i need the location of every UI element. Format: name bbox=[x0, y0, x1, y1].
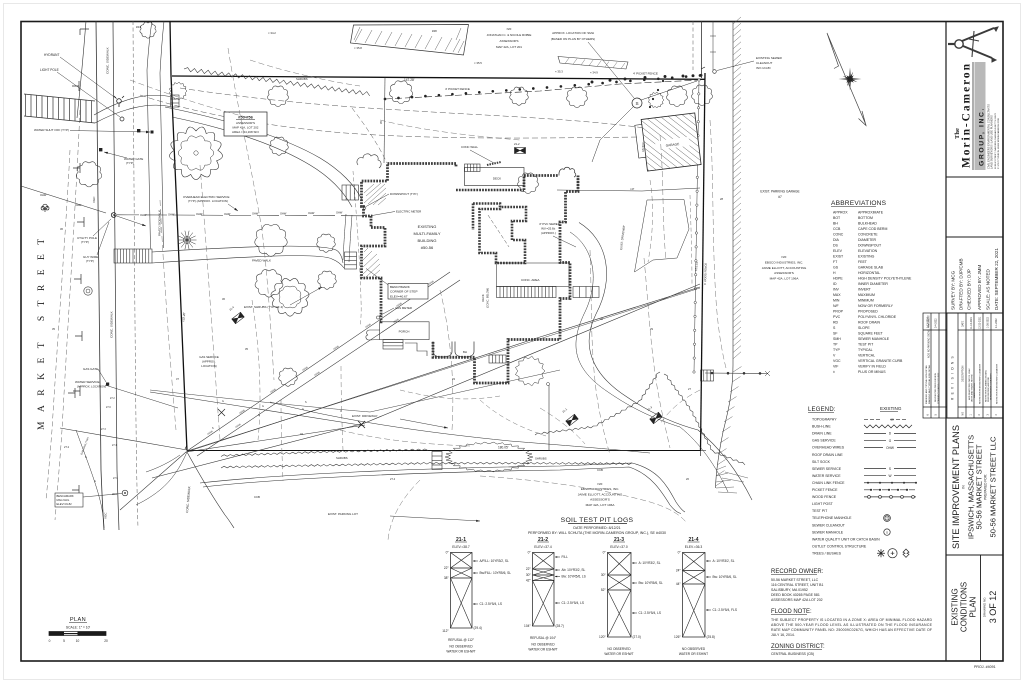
svg-text:REFUSAL @ 112″: REFUSAL @ 112″ bbox=[448, 638, 475, 642]
svg-text:PICKET FENCE: PICKET FENCE bbox=[812, 488, 838, 492]
svg-text:WATER OR ESHWT: WATER OR ESHWT bbox=[604, 652, 633, 656]
svg-text:ELEV.=38.7: ELEV.=38.7 bbox=[452, 545, 470, 549]
svg-text:G: G bbox=[222, 400, 224, 403]
svg-text:OHW: OHW bbox=[40, 193, 47, 197]
svg-text:DEPARTMENT COMMENTS: DEPARTMENT COMMENTS bbox=[990, 373, 993, 400]
svg-text:BOT: BOT bbox=[833, 216, 841, 220]
svg-text:INV.=24.8±: INV.=24.8± bbox=[756, 66, 771, 70]
svg-text:MAP 42A, LOT 196A: MAP 42A, LOT 196A bbox=[586, 503, 616, 507]
svg-text:12-22-2021: 12-22-2021 bbox=[979, 316, 982, 329]
svg-text:ABBREVIATIONS: ABBREVIATIONS bbox=[831, 200, 887, 207]
svg-text:REFUSAL @ 104″: REFUSAL @ 104″ bbox=[530, 636, 557, 640]
svg-text:MIN: MIN bbox=[833, 299, 840, 303]
svg-text:TOPOGRAPHY: TOPOGRAPHY bbox=[812, 418, 837, 422]
svg-text:CONDITIONS: CONDITIONS bbox=[960, 582, 969, 632]
svg-text:EXISTING SEWER: EXISTING SEWER bbox=[756, 56, 783, 60]
svg-text:× 35.3: × 35.3 bbox=[555, 70, 563, 74]
svg-text:#48: #48 bbox=[432, 29, 437, 33]
svg-text:MARKING AND TYPICAL SIGN DETAI: MARKING AND TYPICAL SIGN DETAIL bbox=[925, 364, 928, 404]
svg-text:PVC: PVC bbox=[833, 315, 841, 319]
svg-text:OHW: OHW bbox=[308, 211, 315, 215]
svg-text:SEWER MANHOLE: SEWER MANHOLE bbox=[812, 530, 844, 534]
svg-text:THE SUBJECT PROPERTY IS LO: THE SUBJECT PROPERTY IS LOCATED IN A ZON… bbox=[771, 618, 932, 622]
svg-text:INNER DIAMETER: INNER DIAMETER bbox=[858, 282, 888, 286]
svg-text:APPROVED BY: JMM: APPROVED BY: JMM bbox=[977, 265, 982, 310]
svg-text:DATE: DATE bbox=[962, 320, 965, 327]
svg-text:EXIST. SHRUBS (TYP. OF 4): EXIST. SHRUBS (TYP. OF 4) bbox=[244, 305, 283, 309]
svg-text:GARAGE SLAB: GARAGE SLAB bbox=[858, 266, 884, 270]
svg-text:NOW OR FORMERLY: NOW OR FORMERLY bbox=[858, 304, 894, 308]
svg-text:CHECKED BY: DJP: CHECKED BY: DJP bbox=[967, 269, 972, 310]
svg-text:27.4: 27.4 bbox=[112, 444, 117, 447]
svg-text:INV.=25.8±: INV.=25.8± bbox=[541, 227, 556, 231]
svg-text:EXISTING: EXISTING bbox=[858, 255, 875, 259]
svg-text:EBSCO INDUSTRIES, INC.: EBSCO INDUSTRIES, INC. bbox=[765, 260, 803, 264]
svg-text:1-12-2024: 1-12-2024 bbox=[927, 316, 930, 328]
svg-text:#7: #7 bbox=[778, 195, 782, 199]
svg-text:C1: 2.5Y5/4, FLS: C1: 2.5Y5/4, FLS bbox=[713, 608, 737, 612]
svg-text:SMH: SMH bbox=[833, 337, 841, 341]
svg-text:(TYP): (TYP) bbox=[86, 259, 94, 263]
svg-text:66 ELM STREET, DANVERS, MASSAC: 66 ELM STREET, DANVERS, MASSACHUSETTS 01… bbox=[994, 113, 997, 169]
svg-text:SHRUBS: SHRUBS bbox=[296, 77, 308, 81]
svg-text:CAPE COD BERM: CAPE COD BERM bbox=[858, 227, 887, 231]
svg-text:21-2: 21-2 bbox=[514, 142, 520, 146]
svg-text:(25.8): (25.8) bbox=[707, 635, 715, 639]
svg-text:OHW: OHW bbox=[75, 203, 82, 207]
svg-text:CONC. SIDEWALK: CONC. SIDEWALK bbox=[106, 46, 110, 74]
svg-text:WATER OR ESHWT: WATER OR ESHWT bbox=[446, 650, 475, 654]
svg-text:101.15′: 101.15′ bbox=[694, 261, 699, 271]
svg-text:DRAIN LINE: DRAIN LINE bbox=[812, 432, 832, 436]
svg-text:SEWER CLEANOUT: SEWER CLEANOUT bbox=[812, 523, 846, 527]
svg-text:ELEV: ELEV bbox=[833, 249, 843, 253]
svg-text:APPROX. LOCATION OF SMH: APPROX. LOCATION OF SMH bbox=[552, 31, 594, 35]
svg-text:DIA: DIA bbox=[833, 238, 840, 242]
svg-text:GAS GATE: GAS GATE bbox=[83, 367, 98, 371]
svg-text:104″: 104″ bbox=[524, 624, 531, 628]
svg-text:CONC. SIDEWALK: CONC. SIDEWALK bbox=[110, 310, 114, 338]
svg-text:1-26-2022: 1-26-2022 bbox=[987, 316, 990, 328]
svg-text:DECK: DECK bbox=[493, 177, 501, 181]
svg-text:OHW: OHW bbox=[140, 213, 147, 217]
svg-text:50-56 MARKET STREET LLC: 50-56 MARKET STREET LLC bbox=[989, 436, 998, 538]
svg-text:#44: #44 bbox=[136, 25, 141, 29]
svg-text:GAS METER: GAS METER bbox=[395, 306, 412, 310]
svg-text:N/F: N/F bbox=[833, 304, 839, 308]
svg-text:A: 10YR3/2, SL: A: 10YR3/2, SL bbox=[639, 561, 661, 565]
svg-text:HYDRANT: HYDRANT bbox=[44, 53, 59, 57]
svg-text:#50-56: #50-56 bbox=[421, 245, 434, 250]
svg-text:11-10-2021: 11-10-2021 bbox=[970, 316, 973, 329]
svg-text:BOTTOM: BOTTOM bbox=[858, 216, 873, 220]
svg-text:3 OF 12: 3 OF 12 bbox=[988, 591, 998, 624]
svg-text:SEWER SERVICE: SEWER SERVICE bbox=[812, 467, 842, 471]
svg-text:WATER QUALITY UNIT OR CATCH BA: WATER QUALITY UNIT OR CATCH BASIN bbox=[812, 537, 880, 541]
svg-text:ROOF DRAIN: ROOF DRAIN bbox=[858, 321, 880, 325]
svg-text:R E V I S I O N S: R E V I S I O N S bbox=[951, 355, 955, 400]
svg-text:LANDSCAPING: LANDSCAPING bbox=[973, 383, 976, 398]
svg-text:VIF: VIF bbox=[833, 365, 838, 369]
svg-text:±: ± bbox=[833, 370, 835, 374]
svg-text:WATER OR ESHWT: WATER OR ESHWT bbox=[528, 648, 557, 652]
svg-text:EXISTING: EXISTING bbox=[880, 406, 902, 411]
svg-text:(28.7): (28.7) bbox=[556, 624, 564, 628]
svg-text:ELEV=31.82: ELEV=31.82 bbox=[57, 502, 73, 506]
svg-text:OVERHEAD WIRES: OVERHEAD WIRES bbox=[812, 446, 845, 450]
svg-text:SILT SOCK: SILT SOCK bbox=[812, 460, 831, 464]
svg-text:MARKET STREET: MARKET STREET bbox=[37, 229, 47, 430]
svg-text:OHW: OHW bbox=[196, 212, 203, 216]
svg-text:EXISTING: EXISTING bbox=[951, 588, 960, 625]
svg-text:MAG NAIL: MAG NAIL bbox=[57, 498, 70, 502]
svg-text:VGC: VGC bbox=[92, 196, 96, 203]
svg-text:OHW: OHW bbox=[336, 211, 343, 215]
svg-text:ELEV.=37.4: ELEV.=37.4 bbox=[534, 545, 552, 549]
svg-text:SQUARE FEET: SQUARE FEET bbox=[858, 332, 884, 336]
svg-text:DOWNSPOUT (TYP.): DOWNSPOUT (TYP.) bbox=[390, 192, 418, 196]
svg-text:(TYP): (TYP) bbox=[126, 161, 134, 165]
svg-text:Ab: 10YR3/2, SL: Ab: 10YR3/2, SL bbox=[562, 568, 586, 572]
svg-text:NO OBSERVED: NO OBSERVED bbox=[531, 643, 555, 647]
svg-text:FILL: FILL bbox=[562, 555, 569, 559]
svg-text:FEET: FEET bbox=[858, 260, 868, 264]
svg-text:112″: 112″ bbox=[442, 629, 449, 633]
svg-text:Bw: 10YR5/6, SL: Bw: 10YR5/6, SL bbox=[713, 575, 738, 579]
svg-text:10: 10 bbox=[76, 639, 80, 643]
svg-text:ELECTRIC METER: ELECTRIC METER bbox=[396, 210, 421, 214]
svg-text:CORNER OF STEP: CORNER OF STEP bbox=[390, 290, 418, 294]
svg-text:DECK: DECK bbox=[481, 294, 485, 301]
svg-text:MULTI-FAMILY: MULTI-FAMILY bbox=[414, 231, 441, 236]
svg-text:OHW: OHW bbox=[252, 212, 259, 216]
svg-text:× 34.2: × 34.2 bbox=[268, 31, 276, 35]
svg-text:VGC: VGC bbox=[833, 359, 841, 363]
svg-text:MAP 42A, LOT 202: MAP 42A, LOT 202 bbox=[233, 126, 259, 130]
svg-text:SHRUBS: SHRUBS bbox=[535, 457, 547, 461]
svg-text:REVISE PER PEER REVIEW COMMENT: REVISE PER PEER REVIEW COMMENTS bbox=[980, 363, 982, 404]
svg-text:REVISE PER PEER REVIEW COMMENT: REVISE PER PEER REVIEW COMMENTS bbox=[997, 363, 999, 404]
svg-text:SITE IMPROVEMENT PLANS: SITE IMPROVEMENT PLANS bbox=[951, 425, 961, 549]
svg-text:P: 978-777-8586 W: WWW.MORIN: P: 978-777-8586 W: WWW.MORINCAMERON.COM bbox=[997, 118, 1000, 169]
svg-text:PERFORMED BY: WILL SCHUTA (THE: PERFORMED BY: WILL SCHUTA (THE MORIN-CAM… bbox=[528, 531, 666, 535]
svg-text:POLYVINYL CHLORIDE: POLYVINYL CHLORIDE bbox=[858, 315, 897, 319]
svg-text:CHAIN LINK FENCE: CHAIN LINK FENCE bbox=[812, 481, 845, 485]
svg-text:N/F: N/F bbox=[598, 482, 603, 486]
svg-text:PLUS OR MINUS: PLUS OR MINUS bbox=[858, 370, 886, 374]
svg-text:CONC. AREA: CONC. AREA bbox=[521, 278, 540, 282]
svg-text:(CONC. BELOW): (CONC. BELOW) bbox=[486, 288, 490, 308]
svg-text:WARNING AND TYPICAL SIGN DETAI: WARNING AND TYPICAL SIGN DETAIL bbox=[928, 364, 931, 404]
svg-text:MAP 42A, LOT 196A: MAP 42A, LOT 196A bbox=[770, 277, 800, 281]
svg-text:SLOPE: SLOPE bbox=[858, 326, 870, 330]
svg-text:TYP: TYP bbox=[833, 348, 840, 352]
svg-text:DRAWING NO.: DRAWING NO. bbox=[983, 597, 987, 618]
svg-text:MAP 42A, LOT 201: MAP 42A, LOT 201 bbox=[496, 45, 522, 49]
svg-text:BH: BH bbox=[463, 350, 467, 354]
svg-text:SURVEY BY: MCG: SURVEY BY: MCG bbox=[951, 270, 956, 310]
svg-text:PROP: PROP bbox=[833, 310, 844, 314]
svg-text:GAS SERVICE: GAS SERVICE bbox=[199, 355, 219, 359]
svg-text:W: W bbox=[888, 474, 891, 478]
svg-text:27.4: 27.4 bbox=[390, 477, 396, 481]
svg-text:IN: IN bbox=[962, 485, 966, 489]
svg-text:NO OBSERVED: NO OBSERVED bbox=[449, 645, 473, 649]
svg-text:NO: NO bbox=[962, 412, 965, 416]
svg-text:180.05′: 180.05′ bbox=[498, 445, 509, 449]
svg-text:INV: INV bbox=[833, 288, 840, 292]
svg-text:20: 20 bbox=[104, 639, 108, 643]
svg-text:OHW: OHW bbox=[168, 213, 175, 217]
svg-text:AREA = 24,168 SF±: AREA = 24,168 SF± bbox=[232, 130, 259, 134]
svg-text:Bw: 10YR5/6, SL: Bw: 10YR5/6, SL bbox=[639, 581, 664, 585]
svg-text:27.3: 27.3 bbox=[101, 428, 106, 431]
svg-text:NO OBSERVED: NO OBSERVED bbox=[682, 647, 706, 651]
svg-text:JULY 16, 2014.: JULY 16, 2014. bbox=[771, 633, 795, 637]
svg-text:ELEV.=36.3: ELEV.=36.3 bbox=[685, 545, 703, 549]
svg-text:SF: SF bbox=[833, 332, 837, 336]
svg-text:JAIME ELLIOTT, ACCOUNTING: JAIME ELLIOTT, ACCOUNTING bbox=[578, 492, 623, 496]
svg-text:WATER SHUT OFF (TYP): WATER SHUT OFF (TYP) bbox=[34, 128, 69, 132]
svg-text:FLOOD NOTE:: FLOOD NOTE: bbox=[771, 609, 812, 615]
svg-text:EXIST. DRIVEWAY: EXIST. DRIVEWAY bbox=[352, 414, 378, 418]
svg-text:OHW: OHW bbox=[886, 446, 894, 450]
svg-text:DEED BOOK 40265 PAGE 581: DEED BOOK 40265 PAGE 581 bbox=[771, 593, 820, 597]
svg-text:BENCHMARK: BENCHMARK bbox=[390, 285, 411, 289]
svg-text:OHW: OHW bbox=[224, 212, 231, 216]
svg-text:ELEVATION: ELEVATION bbox=[858, 249, 878, 253]
svg-text:A/FILL: 10YR3/2, SL: A/FILL: 10YR3/2, SL bbox=[480, 559, 509, 563]
svg-text:4′ PICKET FENCE: 4′ PICKET FENCE bbox=[445, 87, 470, 91]
svg-text:LIGHT POST: LIGHT POST bbox=[812, 502, 834, 506]
svg-text:ELEV=40.67: ELEV=40.67 bbox=[390, 294, 408, 298]
svg-text:APPROX: APPROX bbox=[833, 211, 848, 215]
svg-text:TEST PIT: TEST PIT bbox=[812, 509, 828, 513]
svg-text:(BASED ON PLAN BY OTHERS): (BASED ON PLAN BY OTHERS) bbox=[551, 37, 595, 41]
svg-text:PROPOSED: PROPOSED bbox=[858, 310, 878, 314]
svg-text:JAIME ELLIOTT, ACCOUNTING: JAIME ELLIOTT, ACCOUNTING bbox=[762, 266, 807, 270]
svg-text:ASSESSOR'S: ASSESSOR'S bbox=[774, 271, 794, 275]
svg-text:TREES / BUSHES: TREES / BUSHES bbox=[812, 551, 842, 555]
svg-text:(27.0): (27.0) bbox=[633, 635, 641, 639]
svg-text:VERIFY IN FIELD: VERIFY IN FIELD bbox=[858, 365, 886, 369]
svg-text:SALISBURY, MA 01952: SALISBURY, MA 01952 bbox=[771, 588, 808, 592]
svg-text:TELEPHONE MANHOLE: TELEPHONE MANHOLE bbox=[812, 516, 852, 520]
svg-text:G: G bbox=[85, 456, 87, 459]
svg-text:27.6: 27.6 bbox=[113, 477, 118, 480]
svg-text:GROUP, INC.: GROUP, INC. bbox=[979, 107, 986, 166]
svg-text:PROJ. #4091: PROJ. #4091 bbox=[974, 665, 996, 669]
svg-text:DATE: SEPTEMBER 22, 2021: DATE: SEPTEMBER 22, 2021 bbox=[994, 248, 999, 310]
svg-text:TP: TP bbox=[833, 343, 838, 347]
svg-text:GS=30.2: GS=30.2 bbox=[642, 142, 645, 152]
svg-text:DS: DS bbox=[833, 244, 839, 248]
svg-text:CENTRAL BUSINESS (CB): CENTRAL BUSINESS (CB) bbox=[771, 652, 814, 656]
svg-text:27.2: 27.2 bbox=[64, 445, 70, 449]
svg-text:S: S bbox=[635, 101, 638, 106]
svg-text:REVISE PER PEER REVIEW: REVISE PER PEER REVIEW bbox=[935, 372, 937, 402]
svg-text:CONC: CONC bbox=[833, 233, 844, 237]
svg-text:G: G bbox=[94, 480, 96, 483]
svg-text:HDPE: HDPE bbox=[833, 277, 843, 281]
svg-text:LAND SURVEYORS I LAND USE: LAND SURVEYORS I LAND USE PLANNERS bbox=[990, 115, 994, 169]
svg-text:VERTICAL GRANITE CURB: VERTICAL GRANITE CURB bbox=[858, 359, 903, 363]
svg-text:EXISTING: EXISTING bbox=[418, 224, 437, 229]
svg-text:(APPROX.: (APPROX. bbox=[202, 360, 216, 364]
svg-text:VERTICAL: VERTICAL bbox=[858, 354, 875, 358]
svg-text:OHW: OHW bbox=[280, 211, 287, 215]
svg-text:ASSESSOR'S: ASSESSOR'S bbox=[499, 39, 518, 43]
svg-text:(TYP) (APPROX. LOCATION): (TYP) (APPROX. LOCATION) bbox=[188, 199, 228, 203]
svg-text:10: 10 bbox=[890, 418, 894, 422]
svg-text:GAS SERVICE: GAS SERVICE bbox=[812, 439, 836, 443]
svg-text:4′ PICKET FENCE: 4′ PICKET FENCE bbox=[633, 72, 658, 76]
svg-text:50-56 MARKET STREET, LLC: 50-56 MARKET STREET, LLC bbox=[771, 578, 819, 582]
svg-text:WATER OR ESHWT: WATER OR ESHWT bbox=[679, 652, 708, 656]
svg-text:INVERT: INVERT bbox=[858, 288, 872, 292]
svg-text:CCB: CCB bbox=[597, 468, 603, 472]
svg-text:PAVED WALK: PAVED WALK bbox=[252, 259, 271, 263]
svg-text:EXIST. PARKING LOT: EXIST. PARKING LOT bbox=[328, 512, 358, 516]
svg-text:× 35.5: × 35.5 bbox=[474, 61, 482, 65]
svg-text:CONCRETE: CONCRETE bbox=[858, 233, 878, 237]
svg-text:MINIMUM: MINIMUM bbox=[858, 299, 874, 303]
svg-text:G: G bbox=[262, 405, 264, 408]
svg-text:HORIZONTAL: HORIZONTAL bbox=[858, 271, 880, 275]
svg-text:× 35.8: × 35.8 bbox=[354, 46, 362, 50]
svg-text:WOOD FENCE: WOOD FENCE bbox=[812, 495, 837, 499]
svg-text:0: 0 bbox=[49, 639, 51, 643]
svg-text:TEST PIT: TEST PIT bbox=[858, 343, 874, 347]
svg-text:SOIL TEST PIT LOGS: SOIL TEST PIT LOGS bbox=[561, 517, 634, 524]
svg-text:S: S bbox=[886, 530, 888, 534]
svg-text:COMMENTS DATED 2-22-2022: COMMENTS DATED 2-22-2022 bbox=[937, 372, 940, 404]
svg-text:27.2: 27.2 bbox=[110, 397, 115, 400]
svg-text:× 34.9: × 34.9 bbox=[590, 71, 598, 75]
svg-text:EXIST: EXIST bbox=[833, 255, 844, 259]
svg-text:28.6: 28.6 bbox=[112, 493, 117, 496]
svg-text:BENCHMARK: BENCHMARK bbox=[57, 494, 74, 498]
svg-text:×47: ×47 bbox=[630, 188, 635, 191]
svg-text:ID: ID bbox=[833, 282, 837, 286]
svg-text:ASSESSOR'S: ASSESSOR'S bbox=[590, 498, 610, 502]
svg-text:116 CENTRAL STREET, UNIT B1: 116 CENTRAL STREET, UNIT B1 bbox=[771, 583, 824, 587]
svg-text:N/F: N/F bbox=[507, 27, 512, 31]
svg-text:ASSESSORS MAP 42A LOT 202: ASSESSORS MAP 42A LOT 202 bbox=[771, 598, 823, 602]
svg-text:N/F: N/F bbox=[782, 255, 787, 259]
svg-text:APPROXIMATE: APPROXIMATE bbox=[858, 211, 884, 215]
svg-text:Bw: 10YR5/6, LS: Bw: 10YR5/6, LS bbox=[562, 575, 586, 579]
svg-text:DESCRIPTION: DESCRIPTION bbox=[962, 365, 965, 382]
svg-text:SEWER MANHOLE: SEWER MANHOLE bbox=[858, 337, 890, 341]
svg-text:DOWNSPOUT: DOWNSPOUT bbox=[858, 244, 882, 248]
svg-text:WATER SERVICE: WATER SERVICE bbox=[812, 474, 841, 478]
svg-text:Bw/FILL: 10YR5/6, SL: Bw/FILL: 10YR5/6, SL bbox=[480, 571, 512, 575]
svg-text:6′ WOOD FENCE: 6′ WOOD FENCE bbox=[703, 263, 708, 285]
svg-text:C1: 2.5Y5/4, LS: C1: 2.5Y5/4, LS bbox=[562, 601, 585, 605]
svg-text:S: S bbox=[889, 467, 891, 471]
svg-text:JONATHAN C. & NICOLE ROBIE: JONATHAN C. & NICOLE ROBIE bbox=[487, 33, 532, 37]
svg-text:CONC WALL: CONC WALL bbox=[461, 145, 478, 149]
svg-text:120″: 120″ bbox=[599, 635, 606, 639]
svg-text:A: 10YR3/2, SL: A: 10YR3/2, SL bbox=[713, 559, 735, 563]
svg-text:TYPICAL: TYPICAL bbox=[858, 348, 873, 352]
svg-text:126″: 126″ bbox=[674, 635, 681, 639]
svg-text:ASSESSOR'S: ASSESSOR'S bbox=[236, 121, 255, 125]
svg-text:PREPARED FOR:: PREPARED FOR: bbox=[984, 474, 988, 500]
svg-text:SCALE: AS NOTED: SCALE: AS NOTED bbox=[986, 268, 991, 310]
svg-text:(APPROX.): (APPROX.) bbox=[541, 231, 556, 235]
svg-text:BH: BH bbox=[833, 222, 838, 226]
svg-text:DIAMETER: DIAMETER bbox=[858, 238, 877, 242]
svg-text:BUSH-LINE: BUSH-LINE bbox=[812, 425, 831, 429]
svg-text:PLAN: PLAN bbox=[70, 617, 86, 623]
svg-text:ROOF DRAIN LINE: ROOF DRAIN LINE bbox=[812, 453, 843, 457]
svg-text:LEGEND:: LEGEND: bbox=[808, 407, 836, 413]
svg-text:27.0: 27.0 bbox=[106, 406, 111, 409]
svg-text:NO OBSERVED: NO OBSERVED bbox=[607, 647, 631, 651]
svg-text:MAX: MAX bbox=[833, 293, 841, 297]
svg-text:VGC: VGC bbox=[104, 512, 108, 519]
svg-text:OUTLET CONTROL STRUCTURE: OUTLET CONTROL STRUCTURE bbox=[812, 544, 867, 548]
svg-text:4″ PVC SEWER: 4″ PVC SEWER bbox=[539, 222, 560, 226]
svg-text:3-4-2022: 3-4-2022 bbox=[935, 318, 938, 328]
svg-text:CLEANOUT: CLEANOUT bbox=[756, 61, 773, 65]
svg-text:PORCH: PORCH bbox=[399, 330, 410, 334]
svg-text:CCB: CCB bbox=[254, 495, 260, 499]
svg-text:DATE PERFORMED: 8/12/21: DATE PERFORMED: 8/12/21 bbox=[573, 526, 620, 530]
svg-text:GS: GS bbox=[833, 266, 839, 270]
svg-text:RD: RD bbox=[833, 321, 839, 325]
svg-text:EXIST. PARKING GARAGE: EXIST. PARKING GARAGE bbox=[760, 190, 799, 194]
svg-text:ABOVE THE 500-YEAR FLOOD L: ABOVE THE 500-YEAR FLOOD LEVEL AS ILLUST… bbox=[771, 623, 933, 627]
svg-text:RECORD OWNER:: RECORD OWNER: bbox=[771, 569, 824, 575]
svg-text:(29.4): (29.4) bbox=[474, 626, 482, 630]
svg-text:BUILDING: BUILDING bbox=[418, 238, 437, 243]
svg-text:SCALE: 1″ = 10′: SCALE: 1″ = 10′ bbox=[66, 626, 91, 630]
svg-text:CCB: CCB bbox=[833, 227, 841, 231]
svg-text:C1: 2.5Y5/4, LS: C1: 2.5Y5/4, LS bbox=[480, 602, 503, 606]
svg-text:BULKHEAD: BULKHEAD bbox=[858, 222, 877, 226]
svg-text:ZONING DISTRICT:: ZONING DISTRICT: bbox=[771, 644, 825, 650]
svg-text:C1: 2.5Y5/4, LS: C1: 2.5Y5/4, LS bbox=[639, 611, 662, 615]
svg-text:LIGHT POLE: LIGHT POLE bbox=[40, 68, 59, 72]
svg-text:5: 5 bbox=[63, 639, 65, 643]
svg-text:SHRUBS: SHRUBS bbox=[336, 456, 348, 460]
svg-text:(APPROX. LOCATION): (APPROX. LOCATION) bbox=[77, 385, 106, 389]
svg-text:RATE MAP COMMUNITY PANEL N: RATE MAP COMMUNITY PANEL NO: 250009C0267… bbox=[771, 628, 932, 632]
svg-text:50-56 MARKET STREET: 50-56 MARKET STREET bbox=[975, 444, 984, 529]
svg-text:2-1-2022: 2-1-2022 bbox=[995, 318, 998, 328]
svg-text:HIGH DENSITY POLYETHYLENE: HIGH DENSITY POLYETHYLENE bbox=[858, 277, 912, 281]
svg-text:(TYP): (TYP) bbox=[81, 240, 89, 244]
svg-text:WATER SERVICE: WATER SERVICE bbox=[75, 380, 99, 384]
svg-text:PLAN: PLAN bbox=[969, 596, 978, 617]
svg-text:DRAFTED BY: DJP/CMB: DRAFTED BY: DJP/CMB bbox=[959, 258, 964, 310]
svg-text:G: G bbox=[302, 408, 304, 411]
svg-text:ELEV.=37.0: ELEV.=37.0 bbox=[610, 545, 628, 549]
svg-text:MAXIMUM: MAXIMUM bbox=[858, 293, 875, 297]
